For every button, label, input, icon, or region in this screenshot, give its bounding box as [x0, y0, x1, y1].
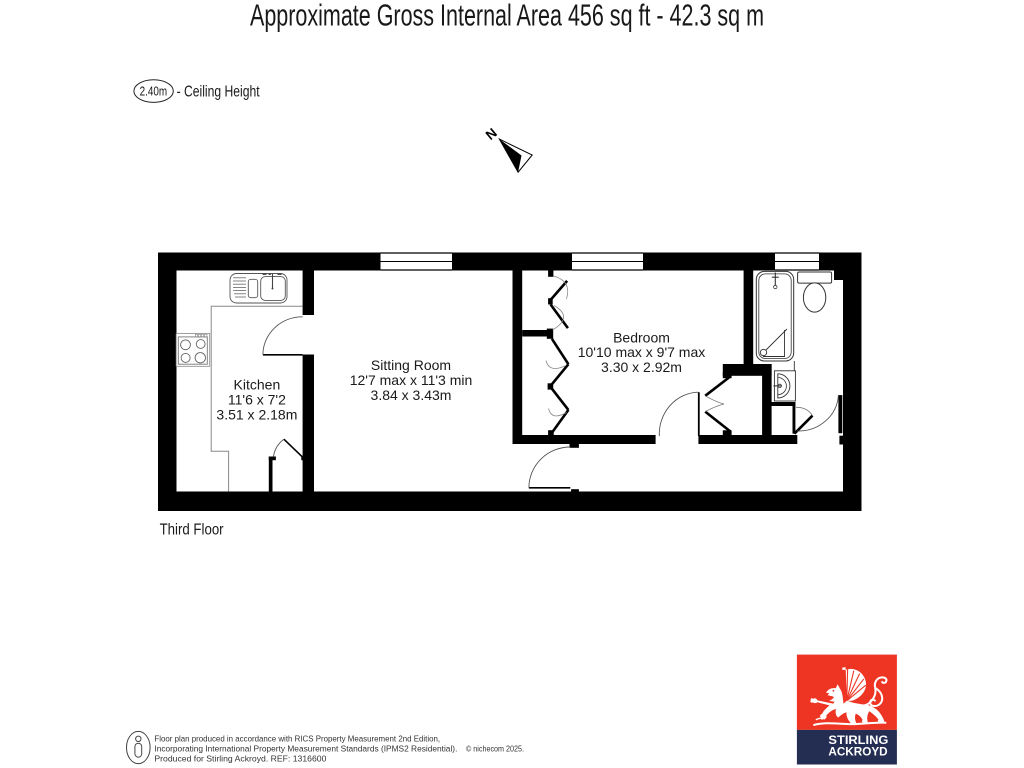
svg-text:11'6 x 7'2: 11'6 x 7'2	[228, 391, 286, 407]
svg-text:Bedroom: Bedroom	[613, 330, 670, 346]
svg-text:Sitting Room: Sitting Room	[371, 357, 451, 373]
svg-text:Floor plan produced in accorda: Floor plan produced in accordance with R…	[154, 734, 440, 744]
svg-text:3.30 x 2.92m: 3.30 x 2.92m	[601, 359, 682, 375]
svg-text:ACKROYD: ACKROYD	[828, 746, 887, 758]
svg-text:Kitchen: Kitchen	[234, 377, 281, 393]
svg-text:10'10 max x 9'7 max: 10'10 max x 9'7 max	[578, 344, 706, 360]
svg-text:STIRLING: STIRLING	[828, 735, 888, 747]
svg-text:2.40m: 2.40m	[140, 85, 168, 99]
svg-text:Third Floor: Third Floor	[160, 522, 224, 539]
svg-text:3.51 x 2.18m: 3.51 x 2.18m	[216, 406, 297, 422]
svg-text:Approximate Gross Internal Are: Approximate Gross Internal Area 456 sq f…	[250, 0, 764, 33]
svg-text:Incorporating International Pr: Incorporating International Property Mea…	[154, 744, 457, 754]
svg-text:3.84 x 3.43m: 3.84 x 3.43m	[371, 387, 452, 403]
svg-text:Produced for Stirling Ackroyd.: Produced for Stirling Ackroyd. REF: 1316…	[154, 754, 326, 764]
svg-text:12'7 max x 11'3 min: 12'7 max x 11'3 min	[350, 372, 473, 388]
svg-text:- Ceiling Height: - Ceiling Height	[177, 84, 261, 101]
svg-text:© nichecom 2025.: © nichecom 2025.	[466, 744, 524, 754]
svg-text:N: N	[483, 125, 500, 143]
